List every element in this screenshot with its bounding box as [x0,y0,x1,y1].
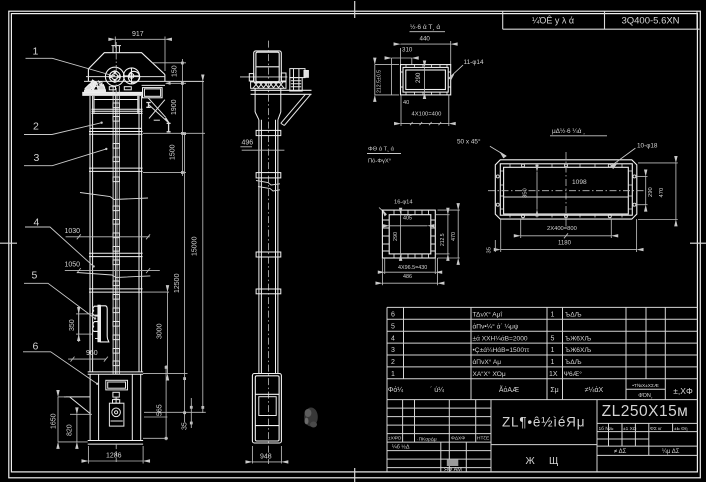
svg-text:11-φ14: 11-φ14 [464,59,484,66]
svg-text:12500: 12500 [174,273,181,293]
svg-text:6: 6 [391,312,395,319]
svg-text:Ж: Ж [526,456,536,467]
svg-text:ЪΔЉ: ЪΔЉ [565,312,582,319]
svg-text:310: 310 [402,47,413,54]
svg-text:470: 470 [451,232,457,241]
svg-text:•Ç±ά¼ΗάΒ=1500ττ: •Ç±ά¼ΗάΒ=1500ττ [473,346,530,354]
svg-text:948: 948 [260,454,272,461]
svg-text:ЪЖ6ΧЉ: ЪЖ6ΧЉ [565,347,591,354]
svg-text:ZL¶•ê½ìéЯμ: ZL¶•ê½ìéЯμ [502,415,585,430]
svg-text:1030: 1030 [65,228,81,235]
svg-text:ΦΔΧΦ: ΦΔΧΦ [451,436,465,442]
svg-text:1: 1 [551,347,555,354]
svg-text:16-φ14: 16-φ14 [394,200,413,206]
svg-text:1286: 1286 [106,453,122,460]
svg-text:±ΧΦ΢Ό: ±ΧΦ΢Ό [388,436,402,442]
svg-text:ÃόΑÆ: ÃόΑÆ [499,385,519,394]
svg-text:212.5±0.5: 212.5±0.5 [377,70,383,93]
svg-text:1Χ: 1Χ [549,371,558,378]
svg-text:1900: 1900 [171,99,178,115]
svg-text:5: 5 [551,335,555,342]
svg-text:3000: 3000 [157,323,164,339]
svg-text:40: 40 [403,100,409,106]
svg-text:2X400=800: 2X400=800 [547,226,577,232]
svg-text:ΧΑ“Χ° ΧΌμ: ΧΑ“Χ° ΧΌμ [473,370,506,378]
svg-text:μΔ½·6 ¼ά ¸: μΔ½·6 ¼ά ¸ [552,127,585,135]
svg-text:ЪЖ6ΧЉ: ЪЖ6ΧЉ [565,335,591,342]
svg-text:4X100=400: 4X100=400 [412,112,442,118]
svg-text:2: 2 [33,121,39,133]
svg-text:±Ь Θη: ±Ь Θη [674,426,688,432]
svg-text:´ ú¼: ´ ú¼ [430,387,444,394]
svg-text:35: 35 [182,422,189,430]
svg-text:ΦΌΝ¸: ΦΌΝ¸ [638,393,653,399]
svg-text:•Τ№Χ±ΧΣÆ: •Τ№Χ±ΧΣÆ [632,383,659,389]
svg-text:ZL250X15м: ZL250X15м [602,403,689,420]
svg-text:486: 486 [403,274,412,280]
svg-text:496: 496 [242,140,254,147]
svg-text:2: 2 [391,359,395,366]
svg-text:ЪΔЉ: ЪΔЉ [565,359,582,366]
svg-text:1: 1 [391,371,395,378]
svg-text:¼ΌÊ у λ ά: ¼ΌÊ у λ ά [532,16,574,26]
svg-text:Φό¼: Φό¼ [388,386,403,394]
svg-text:≠ ΔΣ: ≠ ΔΣ [614,449,627,455]
svg-text:¼б ½Δ: ¼б ½Δ [392,444,410,451]
svg-text:ΦΘ ά Τ¸ ά: ΦΘ ά Τ¸ ά [368,146,395,153]
svg-text:1: 1 [33,46,39,58]
svg-text:917: 917 [132,31,144,38]
svg-text:ЯΦ ΑΜ: ЯΦ ΑΜ [444,467,462,473]
svg-text:150: 150 [172,65,179,77]
svg-text:440: 440 [420,36,431,43]
svg-text:±1 ΧΩ: ±1 ΧΩ [623,426,637,432]
svg-text:350: 350 [523,188,529,198]
svg-text:±ά ΧΧΗ¼άΒ=2000: ±ά ΧΧΗ¼άΒ=2000 [473,334,528,342]
svg-text:15000: 15000 [192,236,199,256]
svg-text:4: 4 [391,335,395,342]
svg-text:ΤΔνΧ° Αμΐ: ΤΔνΧ° Αμΐ [473,311,503,319]
svg-text:290: 290 [648,187,654,197]
svg-text:·ΠΚαρΔμ: ·ΠΚαρΔμ [417,437,437,443]
svg-text:35: 35 [487,247,493,253]
svg-text:ΗΤζΈ: ΗΤζΈ [477,436,490,442]
svg-text:470: 470 [659,188,665,198]
svg-text:1180: 1180 [558,241,572,247]
svg-text:1098: 1098 [572,179,587,186]
svg-text:±,ΧΦ: ±,ΧΦ [673,386,693,396]
svg-text:5: 5 [32,270,38,282]
svg-text:290: 290 [393,232,399,241]
svg-text:άΠνΧ° Αμ: άΠνΧ° Αμ [473,358,502,366]
svg-text:ΦΣ кг: ΦΣ кг [650,426,662,432]
svg-text:1050: 1050 [65,262,81,269]
svg-text:Ψ6Æ°: Ψ6Æ° [564,370,583,378]
svg-text:212.5: 212.5 [440,233,446,246]
svg-text:6: 6 [33,341,39,353]
svg-text:Πό-ΦγΧ°: Πό-ΦγΧ° [368,158,391,165]
svg-text:50 x 45°: 50 x 45° [457,138,481,146]
svg-text:820: 820 [67,424,74,436]
svg-text:½·6 ά Τ¸ ά: ½·6 ά Τ¸ ά [410,23,440,31]
svg-text:350: 350 [69,319,76,331]
svg-text:3Q400-5.6XΝ: 3Q400-5.6XΝ [621,16,679,27]
svg-text:άΠν•¼° ά´ ¼μψ: άΠν•¼° ά´ ¼μψ [473,322,519,330]
svg-text:Щ: Щ [549,456,558,467]
svg-text:Σμ: Σμ [550,387,558,394]
svg-text:10-φ18: 10-φ18 [637,143,658,150]
svg-text:1500: 1500 [170,144,177,160]
svg-text:565: 565 [157,404,164,416]
svg-text:≠¼άΧ: ≠¼άΧ [585,386,604,394]
svg-text:1: 1 [551,359,555,366]
svg-text:1650: 1650 [51,413,58,429]
svg-text:3: 3 [391,347,395,354]
svg-text:¼μ ΔΣ: ¼μ ΔΣ [662,449,680,455]
svg-text:1: 1 [551,312,555,319]
svg-text:5: 5 [391,323,395,330]
svg-text:405: 405 [403,216,412,222]
svg-text:4X96.5=430: 4X96.5=430 [398,265,427,271]
svg-text:960: 960 [86,350,98,357]
svg-text:3: 3 [34,152,40,164]
svg-text:4: 4 [34,217,40,229]
svg-text:1б №Ь: 1б №Ь [599,426,614,432]
svg-text:290: 290 [415,72,422,83]
